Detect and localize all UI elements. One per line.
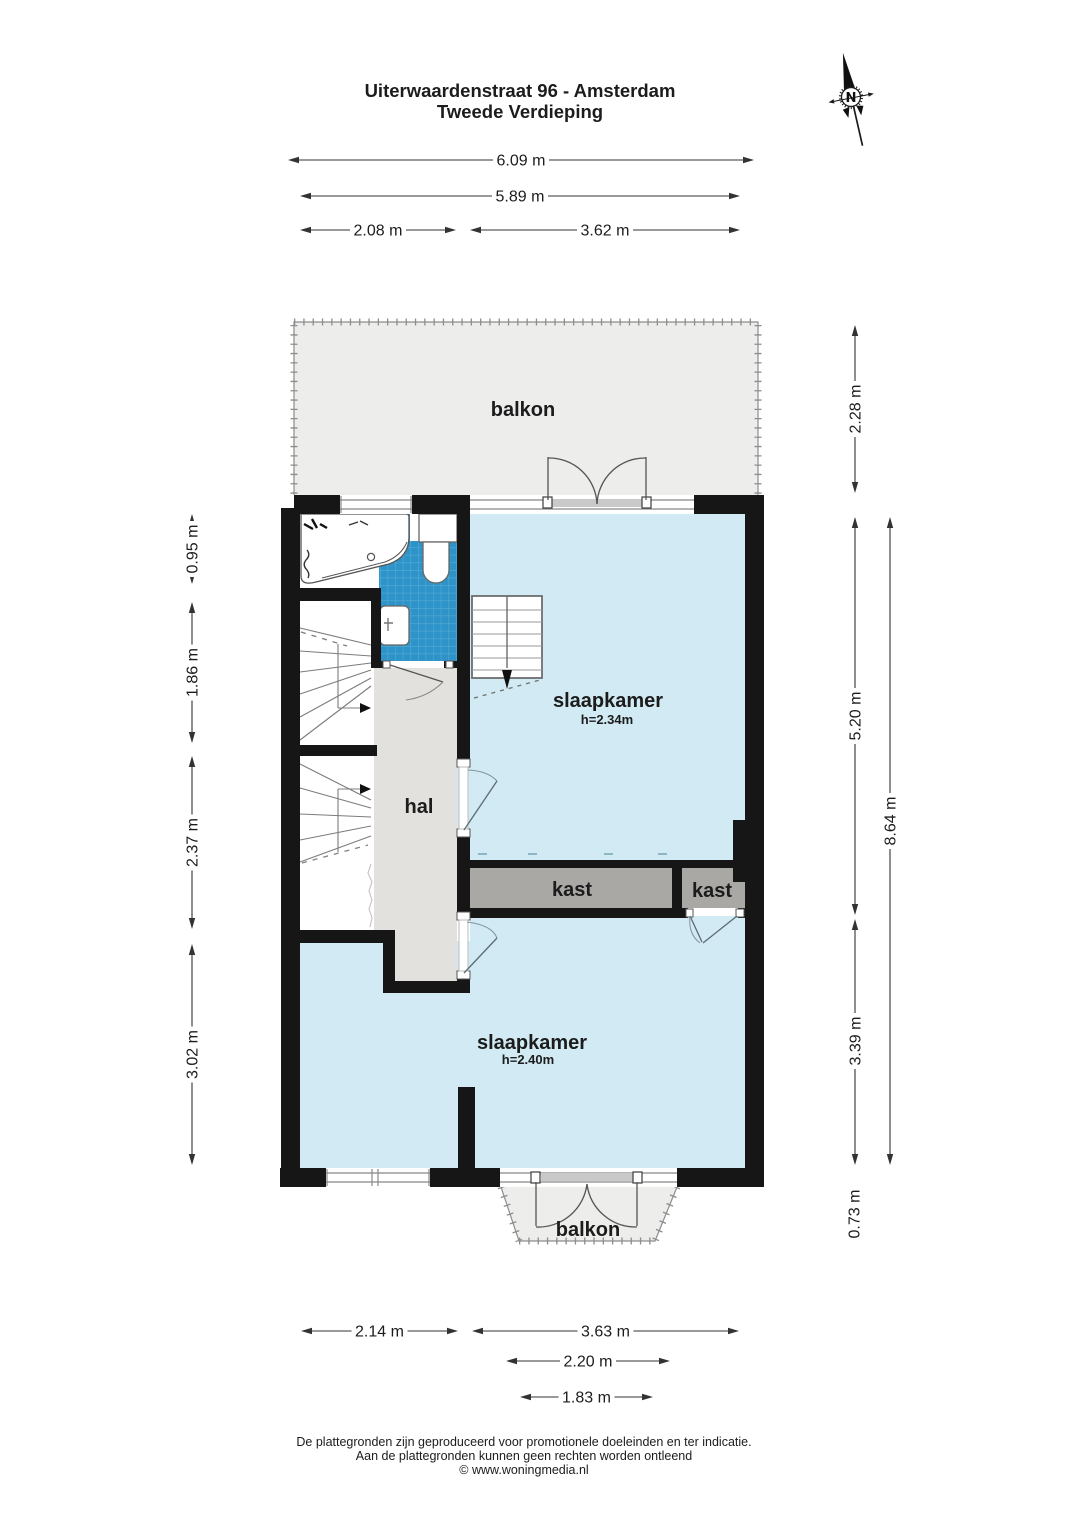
svg-text:2.20 m: 2.20 m [564,1354,613,1371]
svg-text:Tweede Verdieping: Tweede Verdieping [437,101,603,122]
svg-text:2.14 m: 2.14 m [355,1324,404,1341]
svg-text:1.86 m: 1.86 m [185,648,202,697]
svg-text:1.83 m: 1.83 m [562,1390,611,1407]
svg-text:h=2.34m: h=2.34m [581,712,633,727]
svg-text:0.73 m: 0.73 m [847,1190,864,1239]
svg-text:balkon: balkon [556,1219,620,1241]
svg-text:3.39 m: 3.39 m [848,1017,865,1066]
svg-text:2.28 m: 2.28 m [848,385,865,434]
svg-text:slaapkamer: slaapkamer [553,690,663,712]
svg-text:slaapkamer: slaapkamer [477,1032,587,1054]
svg-text:h=2.40m: h=2.40m [502,1052,554,1067]
svg-text:Uiterwaardenstraat 96 - Amster: Uiterwaardenstraat 96 - Amsterdam [365,80,676,101]
svg-text:kast: kast [552,879,592,901]
svg-text:3.02 m: 3.02 m [185,1030,202,1079]
svg-text:5.89 m: 5.89 m [496,189,545,206]
svg-text:0.95 m: 0.95 m [185,525,202,574]
svg-text:5.20 m: 5.20 m [848,692,865,741]
svg-text:De plattegronden zijn geproduc: De plattegronden zijn geproduceerd voor … [296,1435,751,1449]
svg-text:hal: hal [405,796,434,818]
svg-text:Aan de plattegronden kunnen ge: Aan de plattegronden kunnen geen rechten… [356,1449,692,1463]
svg-text:2.37 m: 2.37 m [185,818,202,867]
svg-text:6.09 m: 6.09 m [497,153,546,170]
svg-text:3.62 m: 3.62 m [581,223,630,240]
svg-text:© www.woningmedia.nl: © www.woningmedia.nl [459,1463,588,1477]
svg-text:balkon: balkon [491,399,555,421]
svg-text:8.64 m: 8.64 m [883,797,900,846]
svg-text:3.63 m: 3.63 m [581,1324,630,1341]
svg-text:2.08 m: 2.08 m [354,223,403,240]
svg-text:kast: kast [692,880,732,902]
